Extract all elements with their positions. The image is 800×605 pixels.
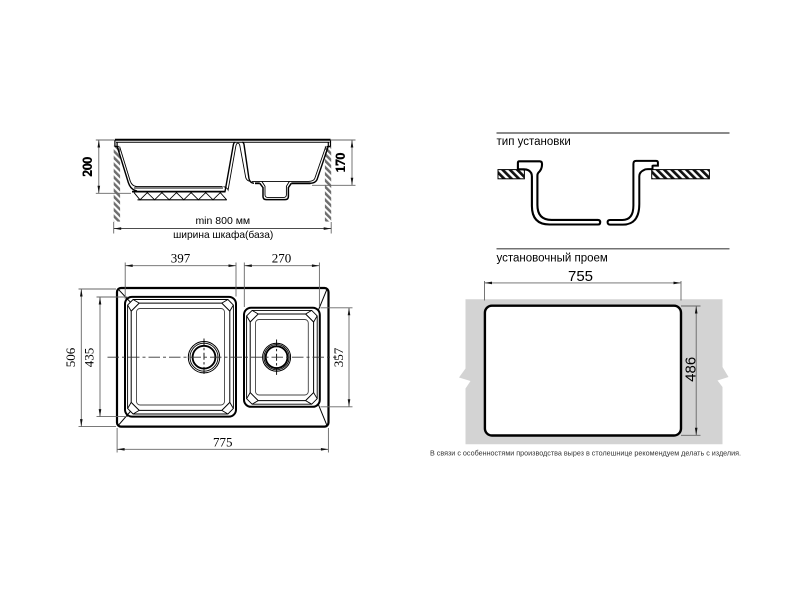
svg-text:357: 357 — [331, 347, 346, 367]
svg-text:В связи с особенностями произв: В связи с особенностями производства выр… — [430, 449, 741, 458]
svg-text:ширина шкафа(база): ширина шкафа(база) — [173, 229, 273, 241]
svg-text:435: 435 — [81, 348, 96, 368]
svg-text:установочный проем: установочный проем — [497, 252, 608, 264]
svg-text:506: 506 — [63, 347, 78, 367]
svg-text:486: 486 — [682, 357, 699, 382]
svg-text:тип установки: тип установки — [497, 136, 571, 148]
svg-text:170: 170 — [333, 153, 348, 173]
svg-text:270: 270 — [272, 250, 292, 265]
svg-text:min 800 мм: min 800 мм — [195, 215, 250, 227]
svg-text:775: 775 — [213, 434, 233, 449]
svg-text:755: 755 — [568, 268, 593, 285]
svg-text:397: 397 — [171, 250, 191, 265]
svg-text:200: 200 — [80, 157, 95, 177]
